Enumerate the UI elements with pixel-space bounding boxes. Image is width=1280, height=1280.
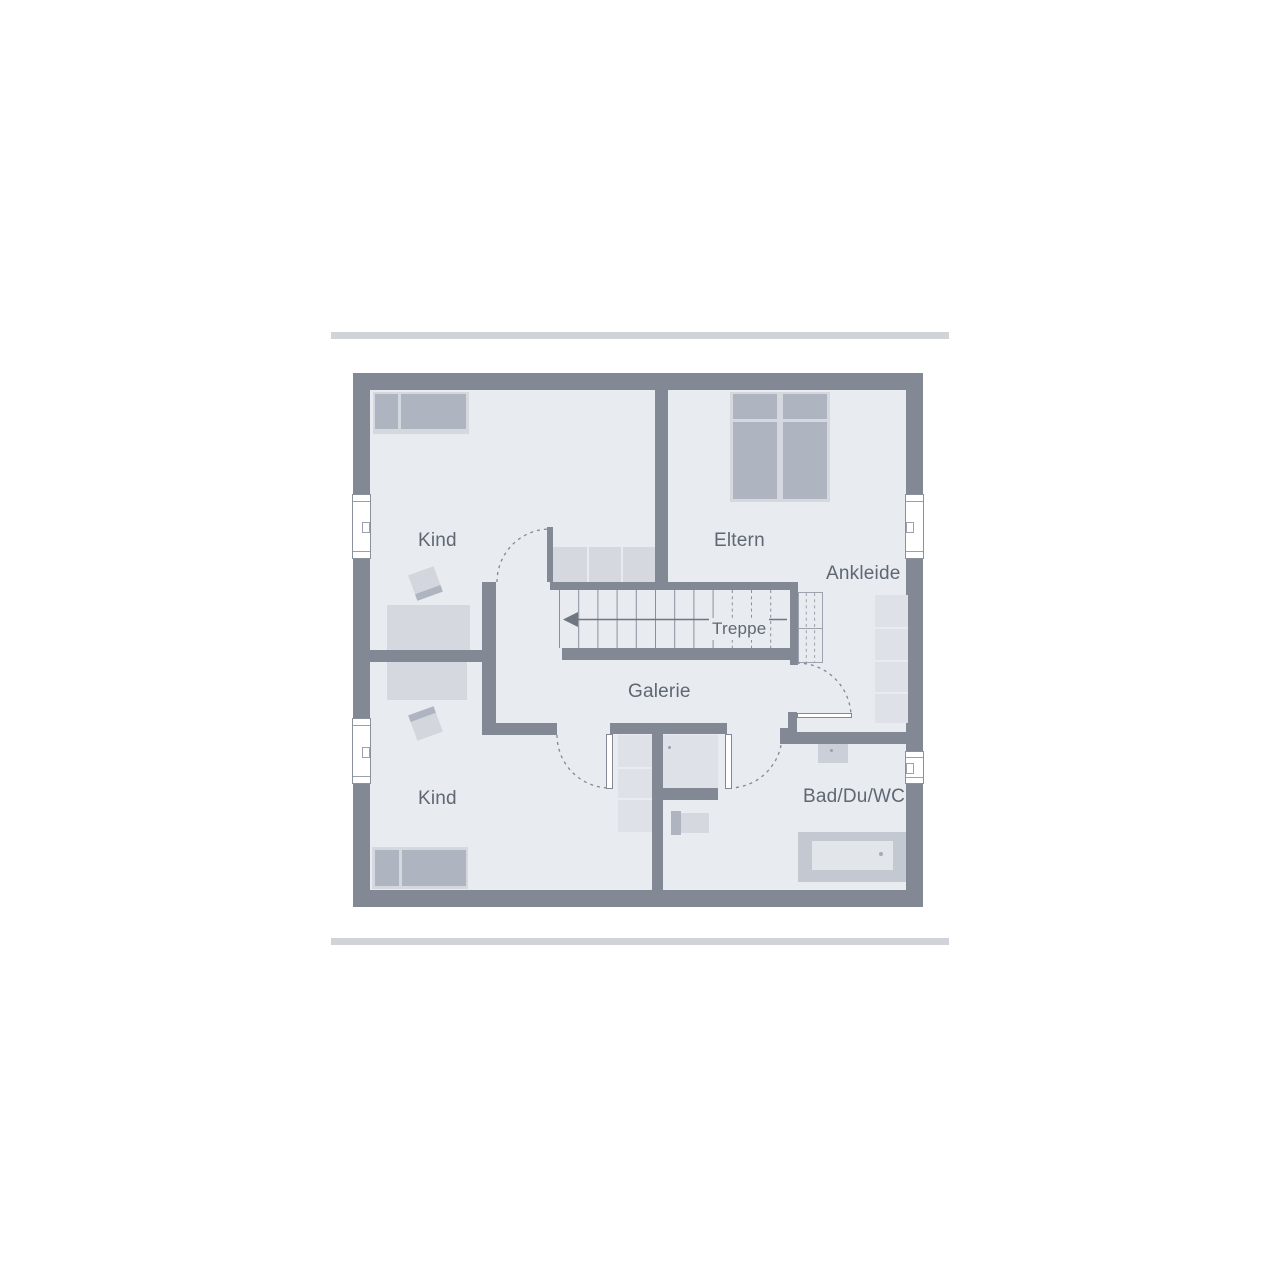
room-label-eltern: Eltern	[714, 530, 765, 552]
window-sill-nub	[362, 747, 370, 758]
shelf-divider	[618, 798, 652, 800]
window-sill-nub	[906, 763, 914, 774]
room-label-kind-bottom: Kind	[418, 788, 457, 810]
room-label-ankleide: Ankleide	[826, 563, 900, 585]
window-sill-nub	[362, 522, 370, 533]
window-right-bottom	[905, 751, 924, 784]
washbasin	[818, 744, 848, 763]
bathtub-drain-dot	[879, 852, 883, 856]
door-leaf-ankleide	[797, 713, 852, 718]
wall-stair-top	[550, 582, 797, 590]
desk-bottom	[387, 662, 467, 700]
bed-pillow-right	[783, 394, 827, 419]
wall-kind-divider	[370, 650, 484, 662]
wardrobe-divider	[875, 660, 908, 662]
wall-stair-right	[790, 582, 798, 665]
sideboard	[552, 547, 655, 582]
stair-label: Treppe	[709, 618, 769, 640]
washbasin-tap-dot	[830, 749, 833, 752]
window-right-top	[905, 494, 924, 559]
sideboard-divider	[587, 547, 589, 582]
window-left-bottom	[352, 718, 371, 784]
shelf-column	[618, 735, 652, 832]
wall-kind-bottom-north-a	[482, 723, 557, 735]
room-label-kind-top: Kind	[418, 530, 457, 552]
wall-bad-west	[652, 733, 663, 890]
room-label-bad: Bad/Du/WC	[803, 786, 905, 808]
door-leaf-kind-top	[547, 527, 553, 582]
wc-cistern	[671, 811, 681, 835]
wall-kind-bottom-north-b	[610, 723, 727, 734]
bed-mattress	[402, 850, 466, 886]
bed-pillow-left	[733, 394, 777, 419]
room-label-galerie: Galerie	[628, 681, 691, 703]
wall-stair-bottom	[562, 648, 790, 660]
sideboard-divider	[621, 547, 623, 582]
wc-bowl	[681, 813, 709, 833]
wardrobe-divider	[875, 692, 908, 694]
door-leaf-bad	[725, 734, 732, 789]
wall-shower-south	[663, 788, 718, 800]
floor-plan-page: Kind Eltern Ankleide Treppe Galerie Kind…	[0, 0, 1280, 1280]
bed-mattress-right	[783, 422, 827, 499]
door-leaf-kind-bottom	[606, 734, 613, 789]
bed-mattress	[401, 394, 466, 429]
bed-pillow	[375, 394, 398, 429]
wall-kind-eltern	[655, 390, 668, 590]
bottom-divider-bar	[331, 938, 949, 945]
top-divider-bar	[331, 332, 949, 339]
bed-mattress-left	[733, 422, 777, 499]
wall-ankleide-door-stub	[788, 712, 797, 744]
wardrobe-divider	[875, 627, 908, 629]
window-sill-nub	[906, 522, 914, 533]
wardrobe	[875, 595, 908, 723]
shelf-divider	[618, 767, 652, 769]
shower	[663, 735, 718, 788]
shower-fitting-dot	[668, 746, 671, 749]
wall-bad-north	[780, 732, 908, 744]
window-left-top	[352, 494, 371, 559]
wall-bad-door-stub	[780, 728, 788, 740]
desk-top	[387, 605, 470, 650]
bed-pillow	[375, 850, 399, 886]
wall-galerie-west	[482, 582, 496, 735]
